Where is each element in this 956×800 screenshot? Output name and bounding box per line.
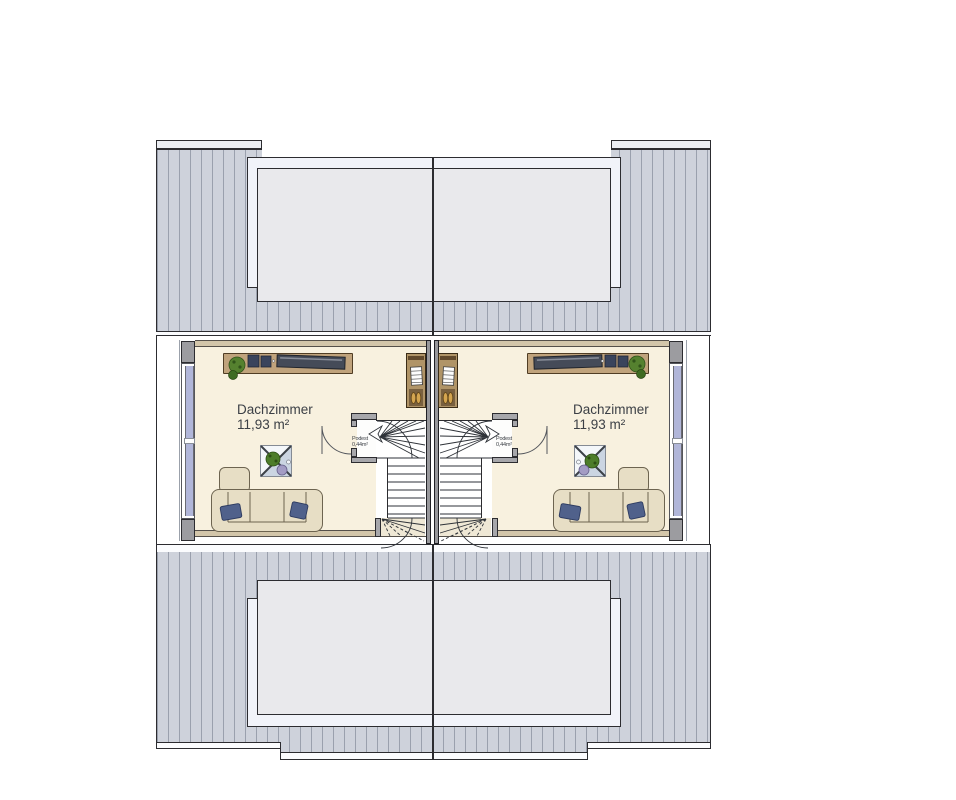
roof-window-cross-right	[575, 446, 605, 476]
staircase-left	[369, 421, 425, 548]
room-name: Dachzimmer	[237, 403, 313, 418]
room-name: Dachzimmer	[573, 403, 649, 418]
podest-label-left: Podest 0,44m²	[352, 437, 368, 449]
roof-window-cross-left	[261, 446, 291, 476]
attic-floor-plan: Dachzimmer 11,93 m² Dachzimmer 11,93 m² …	[0, 0, 956, 800]
speaker-icon	[261, 356, 271, 367]
vase-icon	[277, 465, 287, 475]
shoes-icon	[411, 393, 416, 404]
sideboard-items-right	[534, 355, 646, 379]
shoes-icon	[443, 393, 448, 404]
plant-icon	[266, 452, 280, 466]
sideboard-items-left	[229, 355, 346, 380]
vase-icon	[579, 465, 589, 475]
speaker-icon	[618, 356, 628, 367]
podest-label-right: Podest 0,44m²	[496, 437, 512, 449]
speaker-icon	[248, 355, 259, 367]
staircase-right	[440, 421, 499, 548]
room-area: 11,93 m²	[573, 418, 649, 433]
landing-area: 0,44m²	[496, 443, 512, 449]
shoes-icon	[416, 393, 421, 404]
door-swing-left	[322, 426, 351, 454]
cushion-icon	[627, 501, 646, 519]
shoes-icon	[448, 393, 453, 404]
tv-icon	[534, 355, 602, 369]
tv-icon	[277, 355, 345, 369]
door-swing-right	[518, 426, 547, 454]
shelf-items-left	[411, 367, 423, 404]
landing-area: 0,44m²	[352, 443, 368, 449]
detail-overlay	[0, 0, 956, 800]
room-label-left: Dachzimmer 11,93 m²	[237, 403, 313, 432]
room-area: 11,93 m²	[237, 418, 313, 433]
room-label-right: Dachzimmer 11,93 m²	[573, 403, 649, 432]
cushion-icon	[559, 503, 581, 520]
stair-direction-arrow-left	[369, 426, 382, 442]
speaker-icon	[605, 355, 616, 367]
cushion-icon	[290, 501, 309, 519]
cushion-icon	[220, 503, 242, 520]
shelf-items-right	[443, 367, 455, 404]
